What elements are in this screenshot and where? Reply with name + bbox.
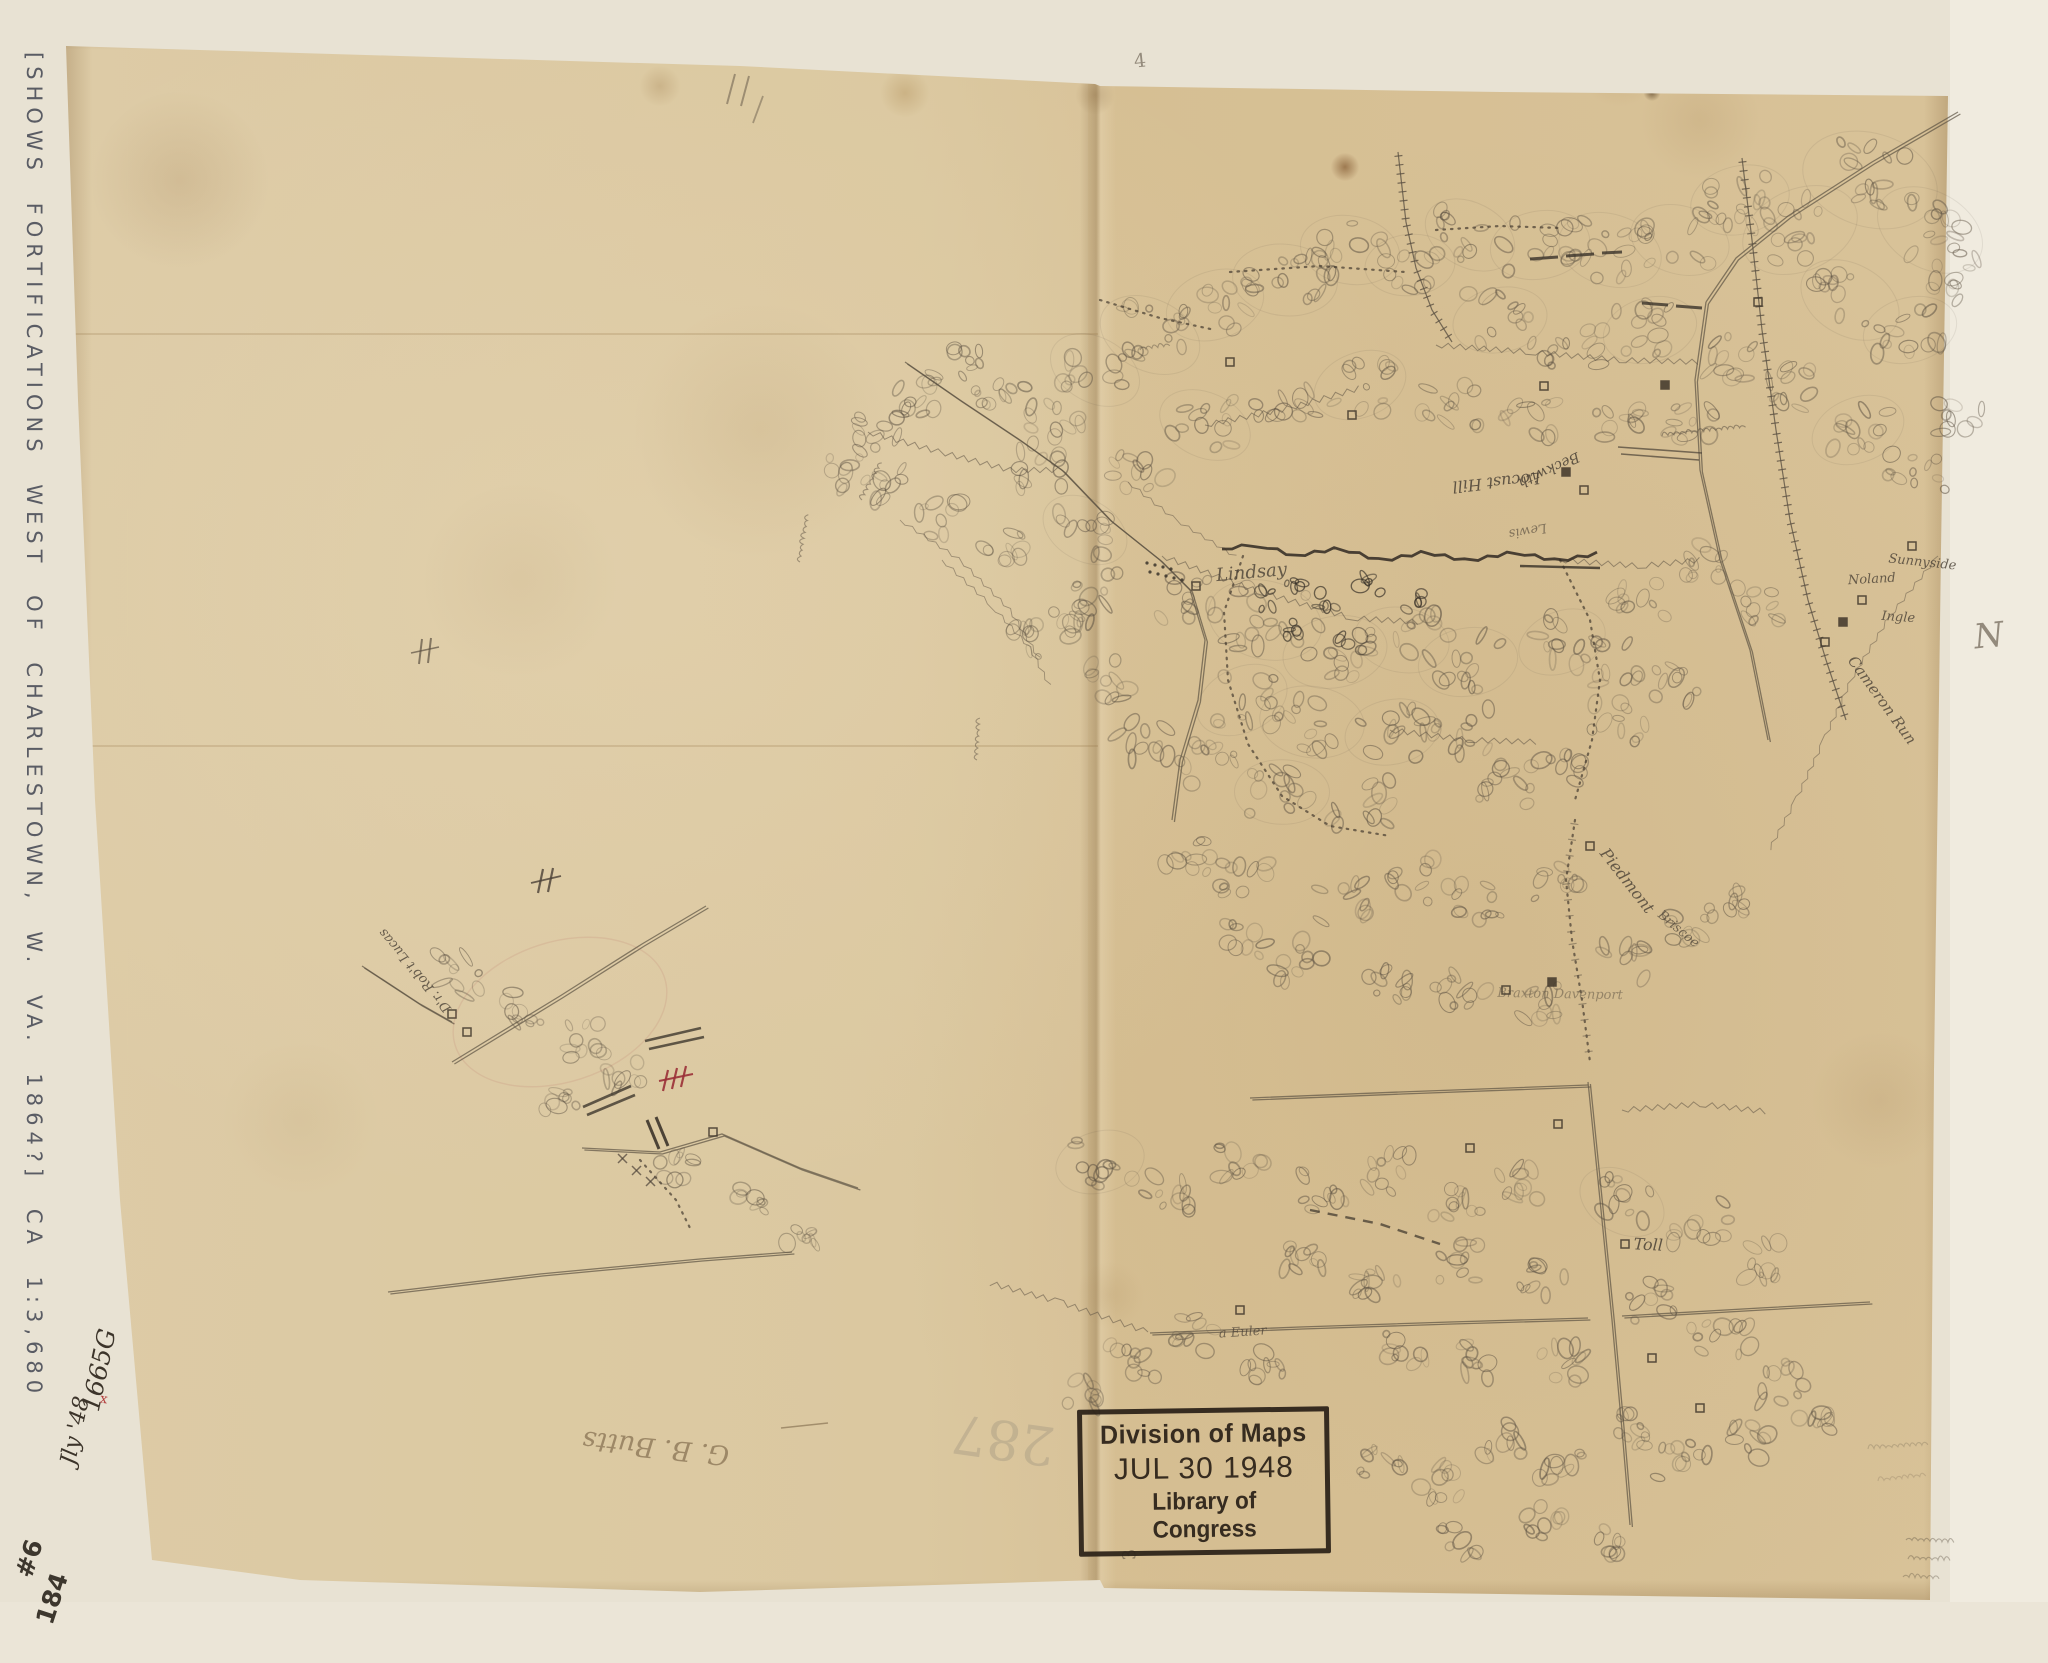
library-of-congress-stamp: Division of Maps JUL 30 1948 Library of … [1077,1406,1331,1557]
map-label: D'r. Rob't Lucas [376,925,456,1016]
fence-lines [868,343,1765,1332]
map-label: Beckwith [1515,448,1582,491]
map-label: Toll [1633,1234,1663,1255]
illegible-scrawls [796,342,1954,1579]
map-label: Piedmont [1595,844,1658,918]
map-label: Lindsay [1214,559,1288,586]
streams [900,482,1938,850]
scanned-map-page: LindsayLocust HillBeckwithLewisSunnyside… [0,0,2048,1663]
map-label: a Euler [1218,1323,1268,1341]
map-label: Ingle [1880,609,1916,626]
map-label: Cameron Run [1844,652,1920,747]
stamp-line-3: Library of Congress [1098,1487,1311,1546]
map-label: Lewis [1507,520,1549,542]
map-label: Noland [1847,571,1897,589]
map-label: Sunnyside [1888,551,1958,573]
stamp-line-1: Division of Maps [1090,1418,1316,1452]
roads [362,112,1960,1527]
map-label: Braxton Davenport [1496,986,1624,1003]
pencil-sketch-layer: LindsayLocust HillBeckwithLewisSunnyside… [0,0,2048,1663]
stamp-line-2: JUL 30 1948 [1091,1450,1317,1487]
